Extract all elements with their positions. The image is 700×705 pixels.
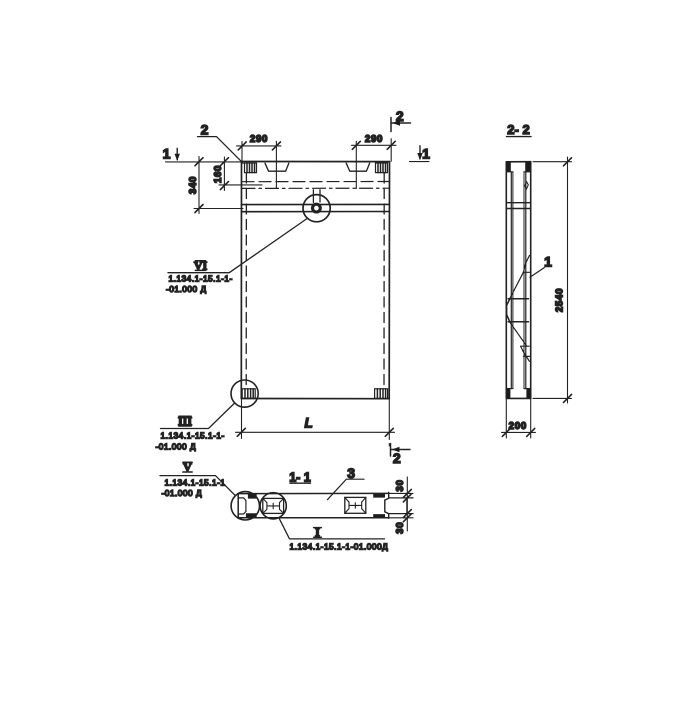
svg-text:1.134.1-15.1-1-01.000Д: 1.134.1-15.1-1-01.000Д [290,542,389,552]
svg-text:290: 290 [250,134,268,145]
svg-text:2: 2 [201,122,209,138]
svg-text:1.134.1-15.1-1-: 1.134.1-15.1-1- [169,274,233,284]
svg-text:-01.000 Д: -01.000 Д [166,284,207,294]
svg-text:1: 1 [163,145,171,161]
svg-text:30: 30 [395,522,406,534]
svg-text:2540: 2540 [554,288,565,312]
svg-text:340: 340 [188,176,199,194]
svg-text:1- 1: 1- 1 [289,470,311,484]
svg-text:290: 290 [365,134,383,145]
svg-text:-01.000 Д: -01.000 Д [162,488,203,498]
svg-text:1.134.1-15.1-1: 1.134.1-15.1-1 [165,477,226,487]
svg-text:2- 2: 2- 2 [507,122,529,137]
svg-text:1: 1 [544,254,552,270]
svg-text:160: 160 [213,165,224,183]
svg-text:-01.000 Д: -01.000 Д [156,442,197,452]
svg-text:L: L [304,416,312,431]
svg-text:1: 1 [422,145,430,161]
svg-text:30: 30 [395,479,406,491]
svg-text:2: 2 [393,450,401,466]
svg-text:1.134.1-15.1-1-: 1.134.1-15.1-1- [161,430,225,440]
svg-text:200: 200 [509,421,527,432]
